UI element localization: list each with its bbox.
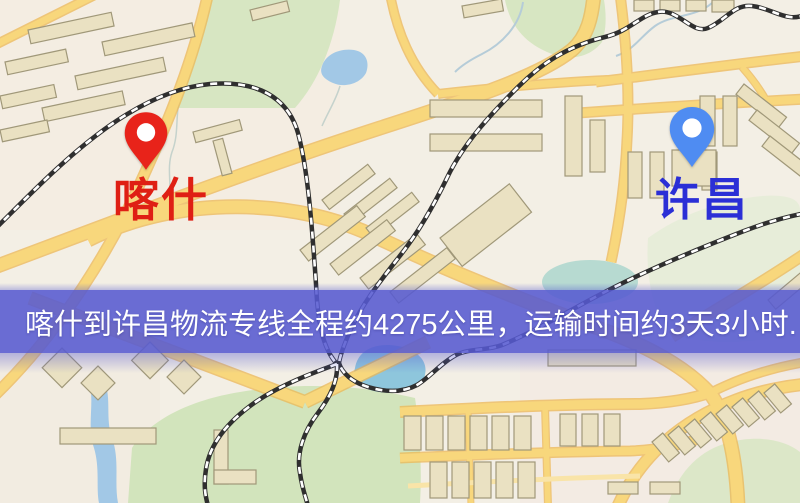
route-info-text: 喀什到许昌物流专线全程约4275公里，运输时间约3天3小时. [25,301,797,343]
map-base[interactable] [0,0,800,503]
marker-destination-xuchang[interactable] [668,104,716,170]
origin-label: 喀什 [96,177,226,223]
logistics-route-map: 喀什 许昌 喀什到许昌物流专线全程约4275公里，运输时间约3天3小时. [0,0,800,503]
blue-location-pin-icon [668,104,716,170]
red-location-pin-icon [123,110,169,172]
marker-origin-kashi[interactable] [123,110,169,172]
route-info-banner: 喀什到许昌物流专线全程约4275公里，运输时间约3天3小时. [0,290,800,353]
destination-label: 许昌 [640,177,764,222]
